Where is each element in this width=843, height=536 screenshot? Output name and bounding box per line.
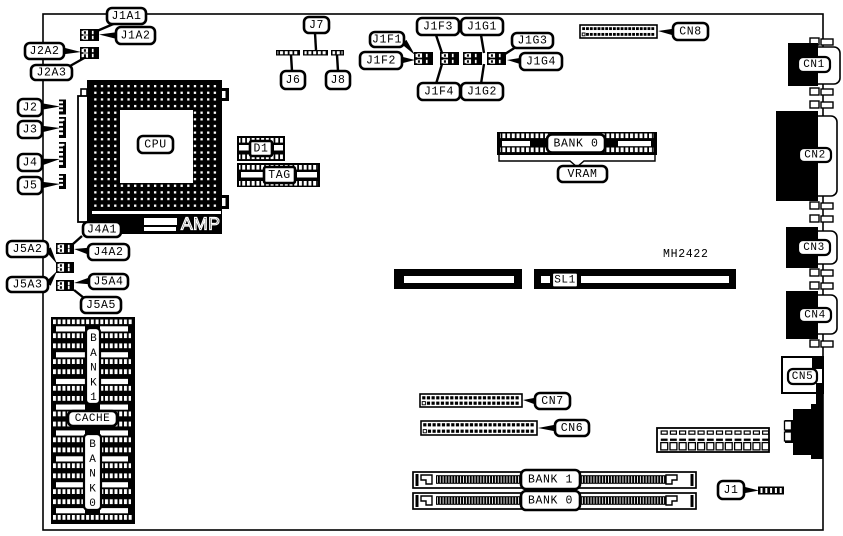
svg-text:MH2422: MH2422: [663, 248, 709, 261]
svg-text:CACHE: CACHE: [75, 413, 111, 425]
svg-text:J5A4: J5A4: [93, 276, 123, 289]
svg-text:CN6: CN6: [561, 422, 584, 435]
svg-text:CN7: CN7: [541, 395, 564, 408]
svg-text:J5: J5: [22, 180, 37, 193]
svg-text:J1F1: J1F1: [372, 34, 402, 47]
svg-text:J4A2: J4A2: [93, 246, 123, 259]
svg-text:J2A2: J2A2: [29, 45, 59, 58]
svg-text:N: N: [90, 363, 97, 375]
svg-text:J8: J8: [330, 74, 345, 87]
svg-text:J4A1: J4A1: [87, 224, 117, 237]
svg-text:J1G4: J1G4: [526, 56, 556, 69]
svg-text:J3: J3: [22, 124, 37, 137]
svg-text:J5A2: J5A2: [12, 243, 42, 256]
svg-text:A: A: [89, 454, 96, 466]
svg-text:B: B: [89, 439, 96, 451]
svg-text:CPU: CPU: [144, 139, 167, 152]
svg-text:J1A1: J1A1: [111, 10, 141, 23]
svg-text:K: K: [90, 377, 97, 389]
svg-text:J5A3: J5A3: [12, 279, 42, 292]
svg-text:J1: J1: [723, 484, 738, 497]
svg-text:CN1: CN1: [803, 59, 825, 71]
svg-text:BANK 1: BANK 1: [528, 474, 573, 487]
svg-text:VRAM: VRAM: [567, 168, 597, 181]
svg-text:J1F4: J1F4: [424, 86, 454, 99]
svg-text:CN3: CN3: [803, 242, 825, 254]
svg-text:J7: J7: [309, 19, 324, 32]
svg-text:CN2: CN2: [804, 150, 826, 162]
svg-text:CN5: CN5: [792, 371, 814, 383]
svg-text:J1G2: J1G2: [467, 86, 497, 99]
svg-text:A: A: [90, 348, 97, 360]
svg-text:BANK 0: BANK 0: [528, 495, 573, 508]
svg-text:J5A5: J5A5: [86, 299, 116, 312]
svg-text:BANK 0: BANK 0: [553, 138, 598, 151]
svg-text:CN8: CN8: [679, 26, 702, 39]
svg-text:D1: D1: [253, 143, 268, 156]
svg-text:K: K: [89, 483, 96, 495]
svg-text:J1F3: J1F3: [423, 21, 453, 34]
svg-text:J2: J2: [22, 102, 37, 115]
svg-text:CN4: CN4: [804, 310, 826, 322]
svg-text:J1F2: J1F2: [366, 55, 396, 68]
svg-text:0: 0: [89, 498, 96, 510]
svg-text:J1G3: J1G3: [517, 35, 547, 48]
svg-text:J2A3: J2A3: [36, 67, 66, 80]
svg-text:N: N: [89, 469, 96, 481]
svg-text:J6: J6: [285, 74, 300, 87]
svg-text:J1G1: J1G1: [467, 21, 497, 34]
svg-text:TAG: TAG: [268, 169, 291, 182]
svg-text:J4: J4: [22, 157, 37, 170]
svg-text:1: 1: [90, 392, 97, 404]
svg-text:AMP: AMP: [181, 214, 220, 234]
svg-text:J1A2: J1A2: [120, 30, 150, 43]
svg-text:SL1: SL1: [554, 275, 576, 287]
svg-text:B: B: [90, 333, 97, 345]
